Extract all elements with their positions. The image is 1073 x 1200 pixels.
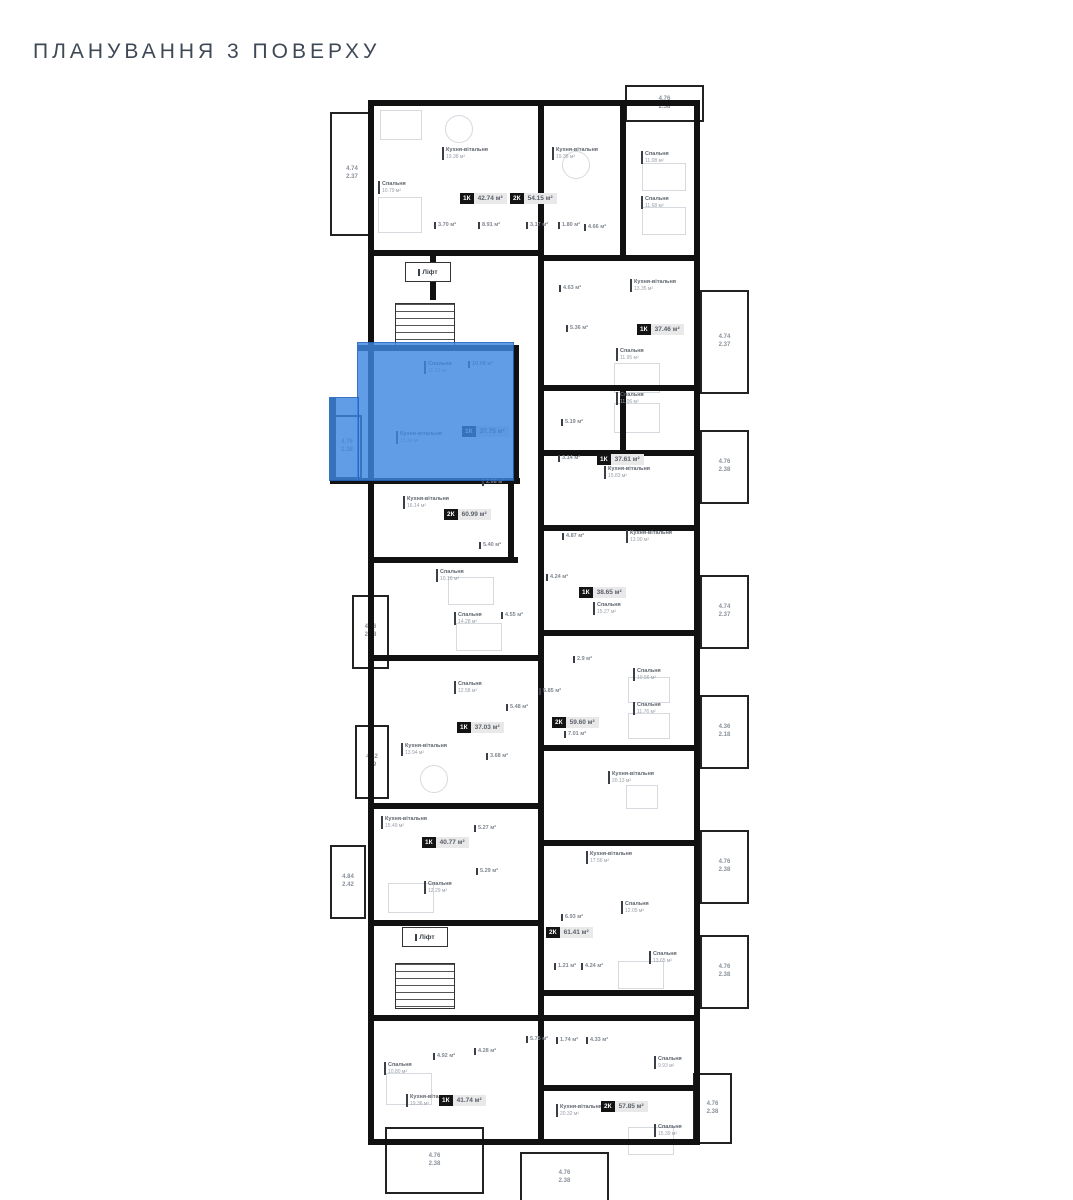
selected-apartment-area-top[interactable] bbox=[358, 343, 513, 480]
floor-plan-page: ПЛАНУВАННЯ 3 ПОВЕРХУ ЛіфтЛіфт4.742.374.7… bbox=[0, 0, 1073, 1200]
selected-apartment-area-left[interactable] bbox=[330, 398, 358, 480]
page-title: ПЛАНУВАННЯ 3 ПОВЕРХУ bbox=[33, 40, 380, 64]
floor-plan: ЛіфтЛіфт4.742.374.762.584.742.374.762.38… bbox=[330, 85, 750, 1200]
selected-apartment-highlight[interactable] bbox=[330, 85, 750, 1200]
